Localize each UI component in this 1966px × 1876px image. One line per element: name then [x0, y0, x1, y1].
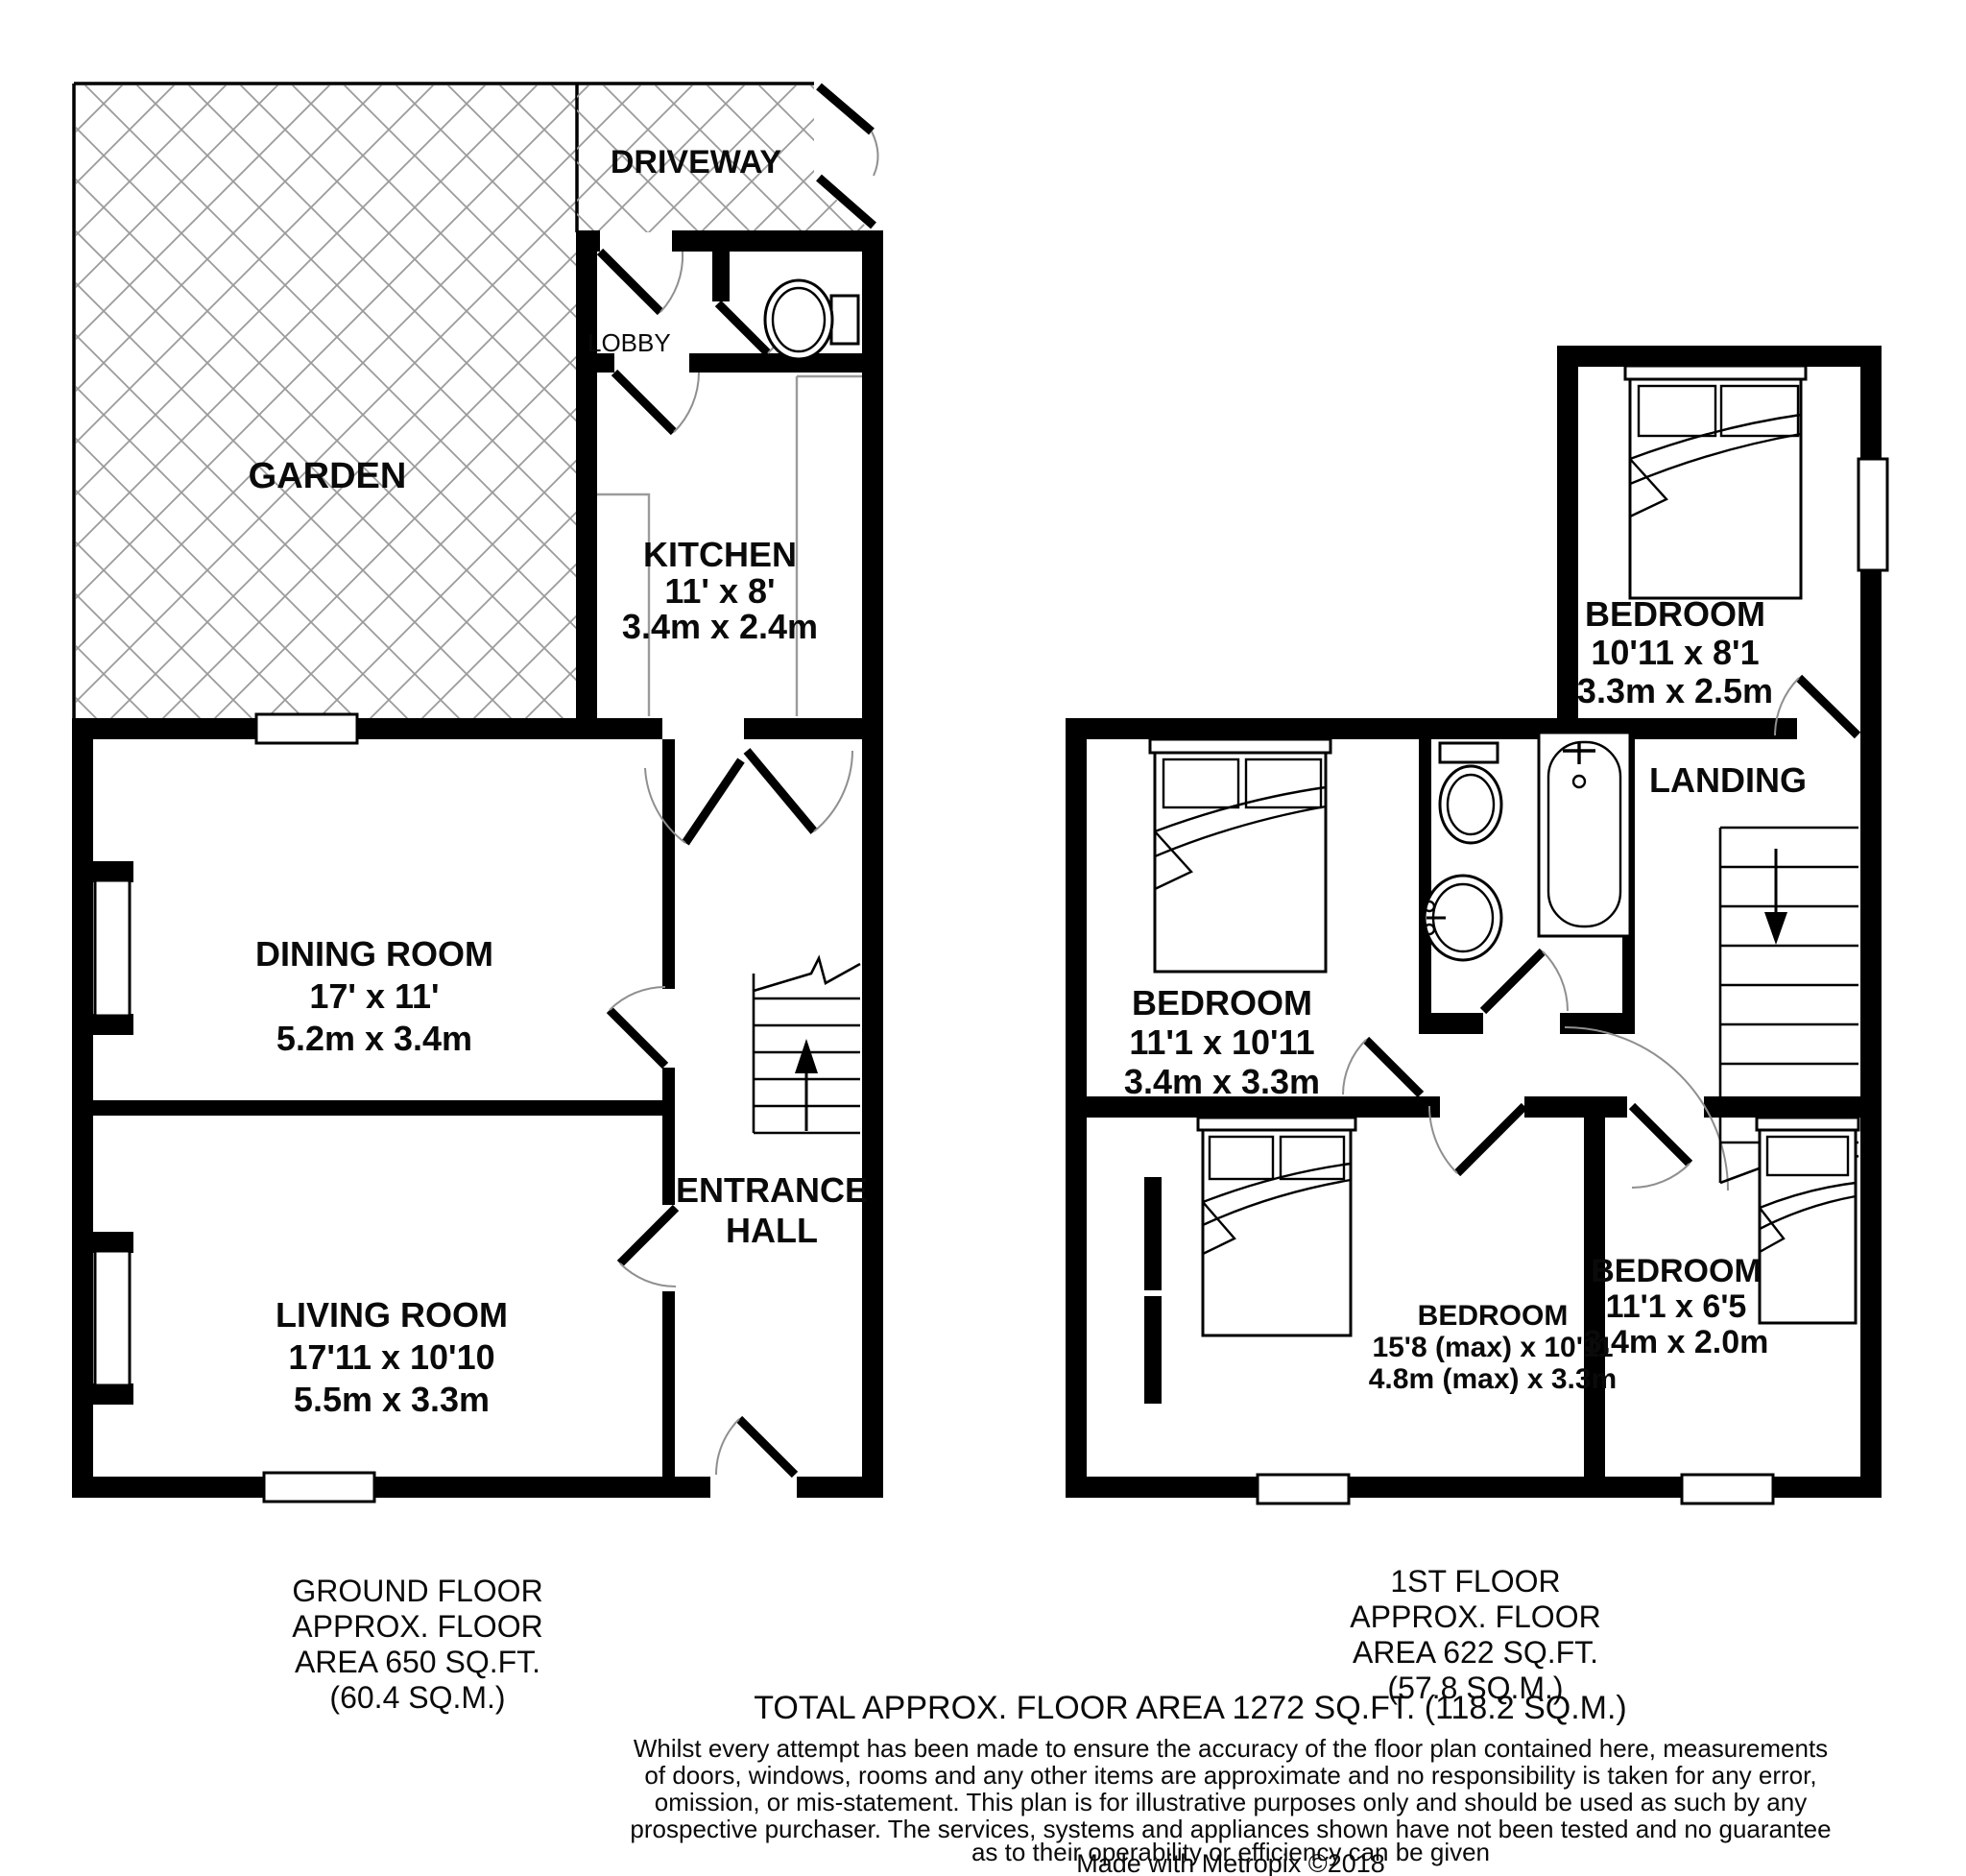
bedroom-back-label: BEDROOM 15'8 (max) x 10'11 4.8m (max) x … — [1369, 1300, 1617, 1395]
svg-text:4.8m (max) x 3.3m: 4.8m (max) x 3.3m — [1369, 1363, 1617, 1395]
sink — [1425, 876, 1501, 960]
svg-text:of doors, windows, rooms and a: of doors, windows, rooms and any other i… — [644, 1761, 1816, 1790]
svg-text:AREA 650 SQ.FT.: AREA 650 SQ.FT. — [295, 1645, 540, 1679]
svg-text:3.4m x 2.4m: 3.4m x 2.4m — [622, 607, 818, 646]
svg-text:3.3m x 2.5m: 3.3m x 2.5m — [1577, 671, 1773, 710]
footer: TOTAL APPROX. FLOOR AREA 1272 SQ.FT. (11… — [630, 1690, 1831, 1876]
svg-text:3.4m x 2.0m: 3.4m x 2.0m — [1584, 1324, 1769, 1360]
bedroom-left-door — [1343, 1040, 1421, 1094]
bedroom-left-label: BEDROOM 11'1 x 10'11 3.4m x 3.3m — [1124, 983, 1320, 1101]
svg-text:17' x 11': 17' x 11' — [309, 976, 439, 1016]
svg-text:KITCHEN: KITCHEN — [643, 535, 797, 574]
svg-text:Whilst every attempt has been: Whilst every attempt has been made to en… — [634, 1734, 1828, 1763]
svg-text:AREA 622 SQ.FT.: AREA 622 SQ.FT. — [1353, 1635, 1598, 1670]
bed-left-bedroom — [1150, 739, 1331, 972]
metropix-credit: Made with Metropix ©2018 — [1076, 1849, 1385, 1876]
svg-text:HALL: HALL — [726, 1211, 818, 1250]
stairs-down-arrow — [1764, 849, 1787, 945]
kitchen-hall-doors — [645, 751, 852, 843]
kitchen-label: KITCHEN 11' x 8' 3.4m x 2.4m — [622, 535, 818, 646]
dining-room-label: DINING ROOM 17' x 11' 5.2m x 3.4m — [255, 934, 493, 1058]
svg-text:BEDROOM: BEDROOM — [1418, 1300, 1569, 1332]
svg-text:3.4m x 3.3m: 3.4m x 3.3m — [1124, 1062, 1320, 1101]
bed-small-bedroom — [1757, 1118, 1858, 1323]
bedroom-small-door — [1632, 1106, 1690, 1188]
svg-text:BEDROOM: BEDROOM — [1132, 983, 1312, 1022]
svg-text:APPROX. FLOOR: APPROX. FLOOR — [292, 1609, 542, 1644]
lobby-kitchen-door — [614, 373, 699, 432]
wc-toilet — [765, 280, 858, 359]
garden-label: GARDEN — [249, 456, 407, 496]
first-floor-plan: BEDROOM 10'11 x 8'1 3.3m x 2.5m LANDING … — [1066, 346, 1887, 1503]
bedroom-small-window — [1682, 1475, 1773, 1503]
svg-text:LIVING ROOM: LIVING ROOM — [276, 1295, 508, 1335]
svg-text:15'8 (max) x 10'11: 15'8 (max) x 10'11 — [1372, 1332, 1613, 1363]
total-area-text: TOTAL APPROX. FLOOR AREA 1272 SQ.FT. (11… — [754, 1690, 1627, 1726]
bedroom-top-window — [1858, 459, 1887, 570]
bedroom-back-door — [1429, 1106, 1524, 1173]
svg-text:GROUND FLOOR: GROUND FLOOR — [292, 1574, 542, 1608]
svg-text:1ST FLOOR: 1ST FLOOR — [1390, 1564, 1560, 1599]
toilet — [1440, 743, 1501, 843]
bedroom-back-window — [1258, 1475, 1349, 1503]
dining-door — [610, 987, 665, 1066]
dining-bay-window — [95, 880, 130, 1016]
first-floor-caption: 1ST FLOOR APPROX. FLOOR AREA 622 SQ.FT. … — [1350, 1564, 1600, 1705]
svg-text:17'11 x 10'10: 17'11 x 10'10 — [288, 1337, 494, 1377]
bathroom-door — [1483, 951, 1568, 1011]
entrance-hall-label: ENTRANCE HALL — [676, 1170, 868, 1250]
lobby-label: LOBBY — [587, 328, 671, 357]
bathtub — [1539, 733, 1630, 936]
svg-text:DINING ROOM: DINING ROOM — [255, 934, 493, 974]
bed-top-bedroom — [1625, 366, 1806, 598]
svg-text:11'1 x 10'11: 11'1 x 10'11 — [1129, 1022, 1314, 1062]
landing-label: LANDING — [1649, 760, 1807, 800]
svg-text:BEDROOM: BEDROOM — [1585, 594, 1765, 634]
svg-text:11'1 x 6'5: 11'1 x 6'5 — [1606, 1288, 1747, 1325]
ground-floor-plan: GARDEN DRIVEWAY LOBBY KITCHEN 11' x 8' 3… — [72, 82, 885, 1502]
living-door — [620, 1208, 676, 1287]
ground-floor-caption: GROUND FLOOR APPROX. FLOOR AREA 650 SQ.F… — [292, 1574, 542, 1715]
ground-doors — [600, 252, 852, 1475]
svg-text:(60.4 SQ.M.): (60.4 SQ.M.) — [329, 1680, 505, 1715]
living-room-label: LIVING ROOM 17'11 x 10'10 5.5m x 3.3m — [276, 1295, 508, 1419]
ground-staircase — [754, 958, 860, 1133]
living-front-window — [264, 1473, 374, 1502]
driveway-lobby-door — [600, 252, 683, 312]
svg-text:5.5m x 3.3m: 5.5m x 3.3m — [294, 1380, 490, 1419]
front-door — [716, 1419, 795, 1475]
svg-text:ENTRANCE: ENTRANCE — [676, 1170, 868, 1210]
driveway-label: DRIVEWAY — [611, 144, 782, 180]
svg-text:omission, or mis-statement. Th: omission, or mis-statement. This plan is… — [655, 1788, 1807, 1816]
bed-back-bedroom — [1198, 1118, 1355, 1335]
svg-text:10'11 x 8'1: 10'11 x 8'1 — [1591, 633, 1759, 672]
bathroom-fixtures — [1425, 733, 1630, 960]
floorplan-page: GARDEN DRIVEWAY LOBBY KITCHEN 11' x 8' 3… — [0, 0, 1966, 1876]
bedroom-small-label: BEDROOM 11'1 x 6'5 3.4m x 2.0m — [1584, 1253, 1769, 1360]
dining-rear-window — [256, 714, 357, 743]
svg-text:11' x 8': 11' x 8' — [664, 571, 775, 611]
svg-text:5.2m x 3.4m: 5.2m x 3.4m — [276, 1019, 472, 1058]
bedroom-top-label: BEDROOM 10'11 x 8'1 3.3m x 2.5m — [1577, 594, 1773, 710]
svg-text:BEDROOM: BEDROOM — [1591, 1253, 1762, 1289]
living-bay-window — [95, 1251, 130, 1385]
svg-text:APPROX. FLOOR: APPROX. FLOOR — [1350, 1599, 1600, 1634]
floor-plan-svg: GARDEN DRIVEWAY LOBBY KITCHEN 11' x 8' 3… — [0, 0, 1966, 1876]
